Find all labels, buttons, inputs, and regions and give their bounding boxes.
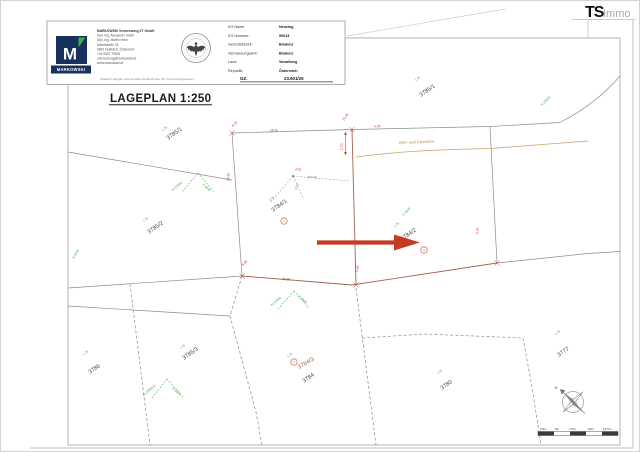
company-line: vermessung@markowski.at (97, 57, 136, 61)
plan-title: LAGEPLAN 1:250 (109, 93, 212, 105)
field-value: Nenzing (279, 25, 293, 29)
dimension-label: 29.20 (226, 172, 231, 181)
company-line: Dipl.-Ing. Martin Heim (97, 38, 128, 42)
field-label: Land: (228, 60, 237, 64)
gz-label: GZ. (240, 76, 247, 81)
field-label: Republik: (228, 69, 243, 73)
dimension-label: 25.96 (282, 277, 291, 282)
point-label: P37 (296, 168, 302, 172)
ts-logo-immo-text: Immo (603, 8, 631, 20)
company-line: +43 5522 79825 (97, 52, 120, 56)
company-line: www.markowski.at (97, 61, 123, 65)
field-label: KG Name: (228, 25, 245, 29)
field-label: Gerichtsbezirk: (228, 43, 253, 47)
page-title: LAGEPLAN 1:250 (110, 93, 211, 105)
field-value: Bludenz (279, 43, 293, 47)
field-value: Vorarlberg (279, 60, 297, 64)
company-line: 6800 Feldkirch, Österreich (97, 47, 135, 51)
field-value: 90013 (279, 34, 289, 38)
scanned-site-plan-page: Geh- und Fahrrecht P37 (25.78) (2.5) N 2… (0, 0, 640, 452)
dimension-label: 6.80 (475, 227, 480, 234)
dimension-label: 2.70 (340, 143, 344, 150)
compass-north-label: N (555, 385, 558, 390)
header-box: M MARKOWSKI MARKOWSKI Vermessung ZT GmbH… (47, 21, 345, 85)
company-line: Dipl.-Ing. Alexander Strobl (97, 34, 134, 38)
scale-tick-label: 12.5m (603, 427, 612, 431)
dimension-label: 25.92 (270, 128, 279, 132)
field-value: Österreich (279, 68, 298, 73)
scale-tick-label: 5m (555, 427, 560, 431)
field-value: Bludenz (279, 51, 293, 55)
logo-monogram: M (63, 45, 77, 64)
tie-distance: (25.78) (307, 175, 317, 180)
field-label: Vermessungsamt: (228, 51, 258, 55)
field-label: KG Nummer: (228, 34, 250, 38)
company-line: Marktstraße 33 (97, 43, 119, 47)
scale-tick-label: 2.5m (540, 427, 547, 431)
markowski-logo: M MARKOWSKI (51, 36, 91, 74)
gz-value: 23.601/25 (284, 76, 304, 81)
scale-tick-label: 7.5m (569, 427, 576, 431)
site-plan-canvas: Geh- und Fahrrecht P37 (25.78) (2.5) N 2… (0, 0, 640, 452)
ts-logo-text: TS (585, 4, 605, 21)
dimension-label: 4.30 (374, 124, 381, 128)
brand-name: MARKOWSKI (57, 67, 85, 72)
disclaimer-text: Staatlich befugte und beeidete Ziviltech… (100, 77, 194, 81)
company-line: MARKOWSKI Vermessung ZT GmbH (97, 29, 155, 33)
scale-tick-label: 10m (588, 427, 594, 431)
